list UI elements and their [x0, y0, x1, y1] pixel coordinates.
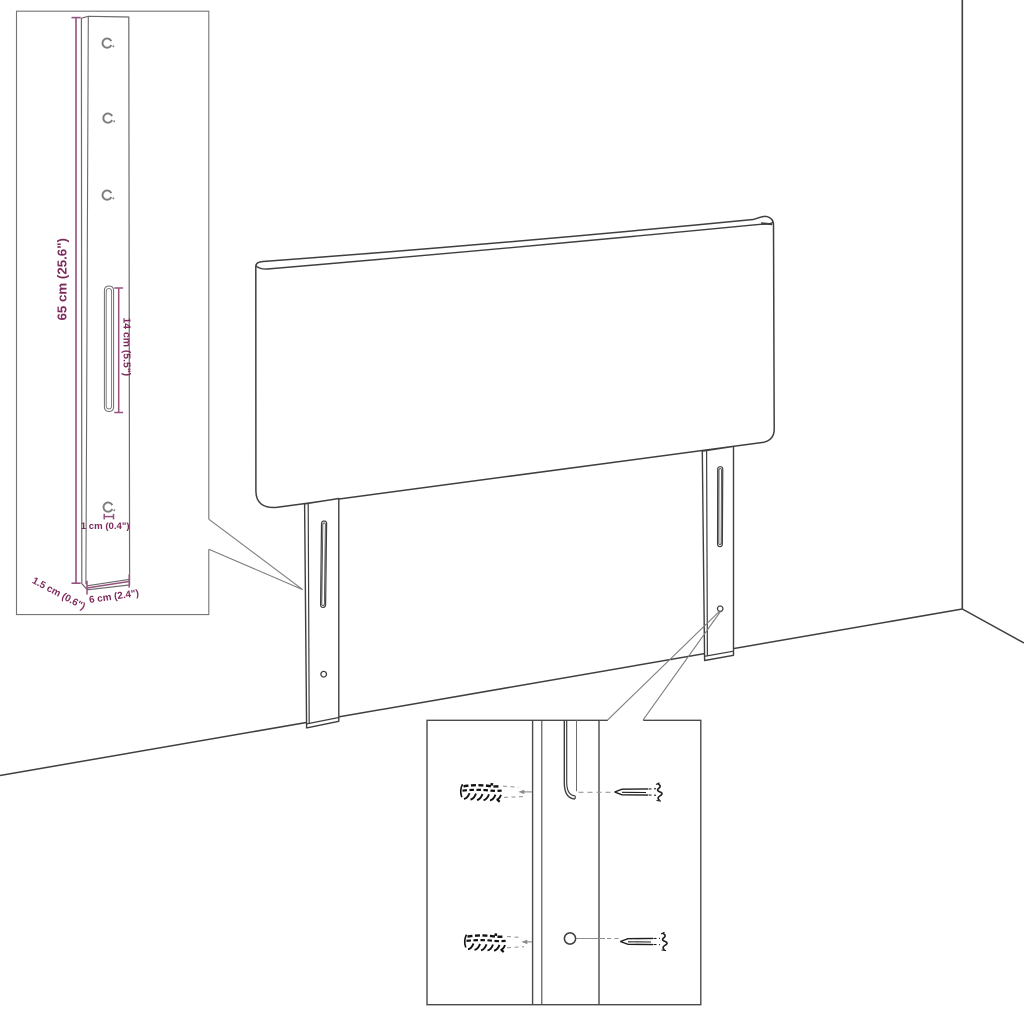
svg-text:65 cm (25.6"): 65 cm (25.6"): [55, 238, 70, 320]
svg-text:1 cm (0.4"): 1 cm (0.4"): [81, 521, 130, 532]
svg-text:14 cm (5.5"): 14 cm (5.5"): [120, 318, 131, 377]
